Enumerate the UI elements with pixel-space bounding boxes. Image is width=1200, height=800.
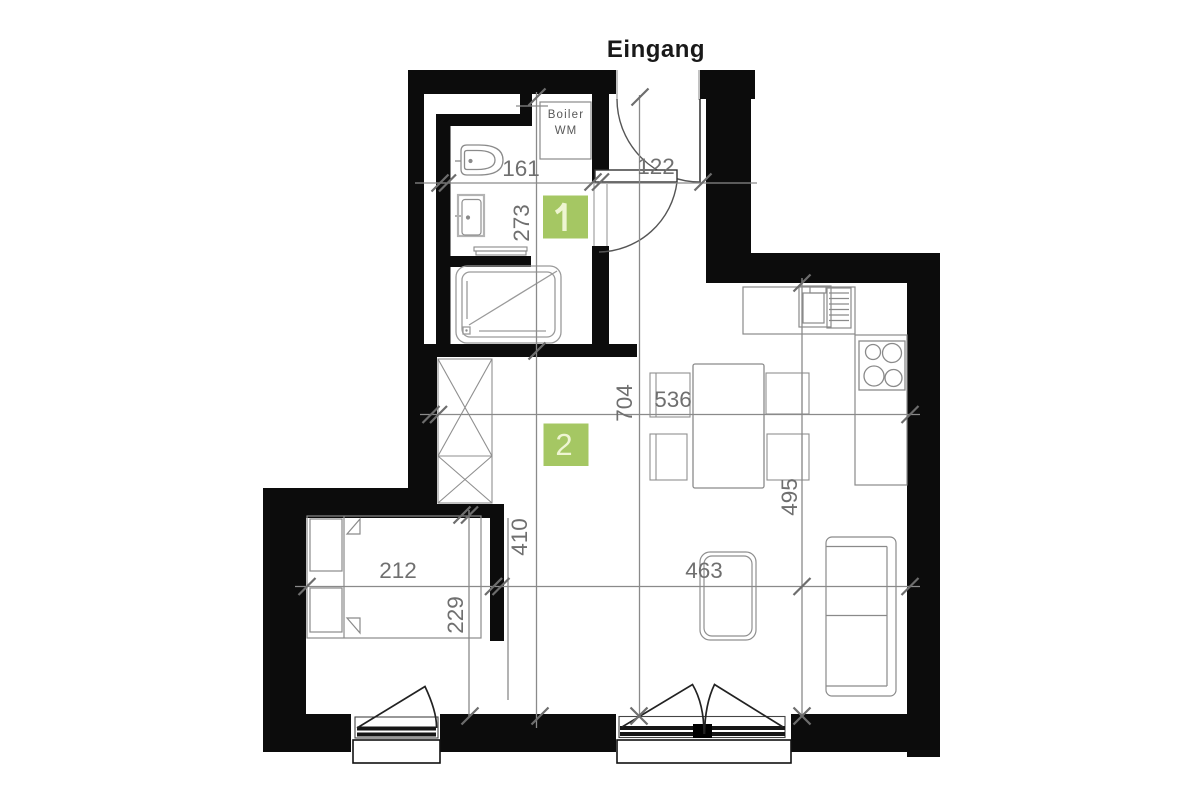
svg-text:Boiler: Boiler xyxy=(548,109,585,121)
svg-text:495: 495 xyxy=(777,478,802,516)
svg-text:410: 410 xyxy=(507,518,532,556)
svg-text:161: 161 xyxy=(502,156,540,181)
svg-text:WM: WM xyxy=(555,125,577,137)
svg-text:212: 212 xyxy=(379,558,417,583)
svg-text:536: 536 xyxy=(654,387,692,412)
svg-text:2: 2 xyxy=(555,427,572,462)
svg-text:463: 463 xyxy=(685,558,723,583)
svg-text:273: 273 xyxy=(509,204,534,242)
svg-text:Eingang: Eingang xyxy=(607,36,705,63)
svg-text:122: 122 xyxy=(637,154,675,179)
svg-text:229: 229 xyxy=(443,596,468,634)
svg-text:704: 704 xyxy=(612,384,637,422)
